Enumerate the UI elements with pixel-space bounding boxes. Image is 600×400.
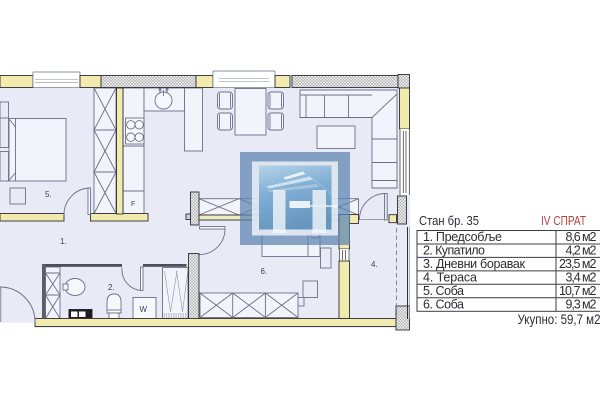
svg-text:F: F: [131, 201, 135, 208]
svg-text:W: W: [140, 305, 148, 314]
svg-text:2.: 2.: [108, 283, 115, 292]
svg-text:4,2 м2: 4,2 м2: [566, 243, 597, 257]
svg-text:3,4 м2: 3,4 м2: [566, 270, 597, 284]
svg-text:6. Соба: 6. Соба: [423, 297, 464, 311]
svg-text:4. Тераса: 4. Тераса: [423, 270, 477, 284]
svg-text:5.: 5.: [45, 190, 52, 199]
svg-text:4.: 4.: [371, 260, 378, 269]
svg-text:1.: 1.: [60, 237, 67, 246]
svg-text:9,3 м2: 9,3 м2: [566, 297, 597, 311]
svg-text:5. Соба: 5. Соба: [423, 284, 464, 298]
svg-text:3. Дневни боравак: 3. Дневни боравак: [423, 257, 526, 271]
svg-text:IV СПРАТ: IV СПРАТ: [541, 213, 586, 228]
svg-text:1. Предсобље: 1. Предсобље: [423, 230, 502, 244]
svg-text:6.: 6.: [261, 267, 268, 276]
svg-text:8,6 м2: 8,6 м2: [566, 230, 597, 244]
svg-text:Укупно: 59,7 м2: Укупно: 59,7 м2: [518, 312, 600, 327]
svg-text:2. Купатило: 2. Купатило: [423, 243, 485, 257]
svg-text:23,5 м2: 23,5 м2: [559, 257, 597, 271]
svg-text:10,7 м2: 10,7 м2: [559, 284, 597, 298]
svg-text:Стан бр. 35: Стан бр. 35: [419, 213, 479, 228]
